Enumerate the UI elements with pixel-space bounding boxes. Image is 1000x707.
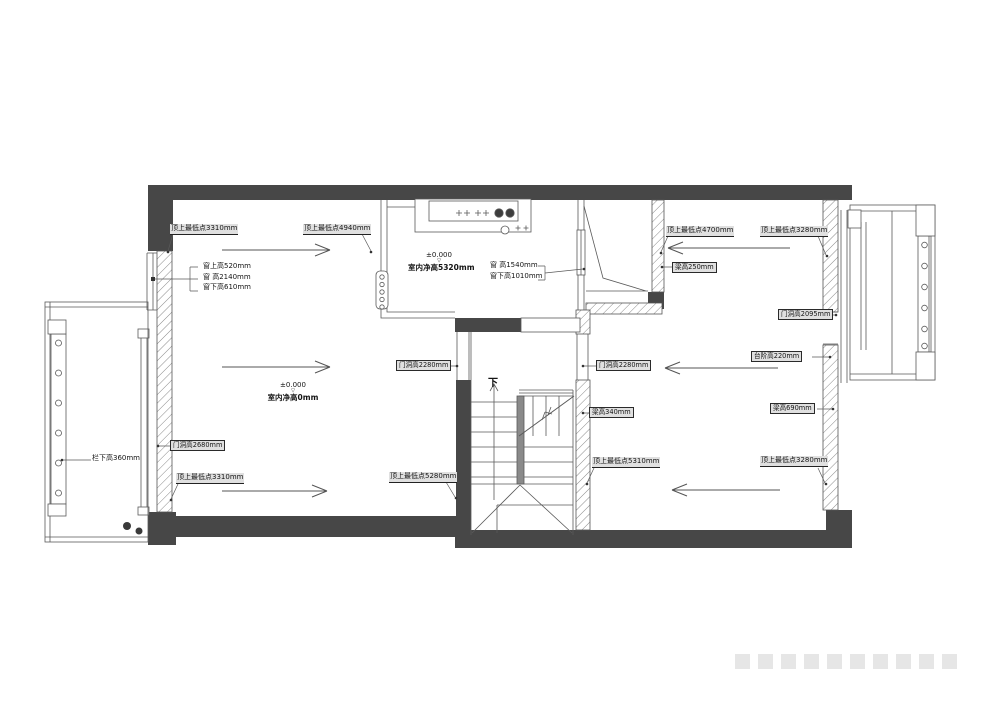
- living-clear-height: 室内净高0mm: [258, 393, 328, 403]
- label-left-window-heights: 窗上高520mm 窗 高2140mm 窗下高610mm: [203, 261, 251, 293]
- floor-plan: 顶上最低点3310mm 顶上最低点4940mm 窗上高520mm 窗 高2140…: [0, 0, 1000, 707]
- window-height: 窗 高2140mm: [203, 272, 251, 283]
- label-entry-window-heights: 窗 高1540mm 窗下高1010mm: [490, 260, 542, 281]
- leader-dots: [61, 251, 838, 535]
- label-door-2680: 门洞高2680mm: [170, 440, 225, 451]
- label-beam-250: 梁高250mm: [672, 262, 717, 273]
- label-ceiling-low-kitchen: 顶上最低点4940mm: [303, 224, 371, 235]
- label-ceiling-low-entry: 顶上最低点4700mm: [666, 226, 734, 237]
- label-step-220: 台阶高220mm: [751, 351, 802, 362]
- label-door-2095: 门洞高2095mm: [778, 309, 833, 320]
- window-top-height: 窗上高520mm: [203, 261, 251, 272]
- construction-lines: [45, 199, 935, 542]
- kitchen-clear-height: 室内净高5320mm: [408, 263, 470, 273]
- window-sill-height: 窗下高610mm: [203, 282, 251, 293]
- label-ceiling-low-stair-left: 顶上最低点5280mm: [389, 472, 457, 483]
- label-stairs-down: 下: [488, 379, 498, 388]
- watermark: [735, 654, 957, 669]
- label-beam-340: 梁高340mm: [589, 407, 634, 418]
- floor-plan-drawing: [0, 0, 1000, 707]
- label-rail-360: 栏下高360mm: [92, 454, 140, 463]
- label-ceiling-low-stair-right: 顶上最低点5310mm: [592, 457, 660, 468]
- label-ceiling-low-bottom-right: 顶上最低点3280mm: [760, 456, 828, 467]
- label-beam-690: 梁高690mm: [770, 403, 815, 414]
- label-ceiling-low-top-left: 顶上最低点3310mm: [170, 224, 238, 235]
- entry-window-height: 窗 高1540mm: [490, 260, 542, 271]
- label-ceiling-low-top-right: 顶上最低点3280mm: [760, 226, 828, 237]
- label-door-2280-left: 门洞高2280mm: [396, 360, 451, 371]
- label-living-level: ±0.000 ▽ 室内净高0mm: [258, 381, 328, 403]
- entry-window-sill: 窗下高1010mm: [490, 271, 542, 282]
- label-door-2280-right: 门洞高2280mm: [596, 360, 651, 371]
- label-ceiling-low-bottom-left: 顶上最低点3310mm: [176, 473, 244, 484]
- label-kitchen-level: ±0.000 ▽ 室内净高5320mm: [408, 251, 470, 273]
